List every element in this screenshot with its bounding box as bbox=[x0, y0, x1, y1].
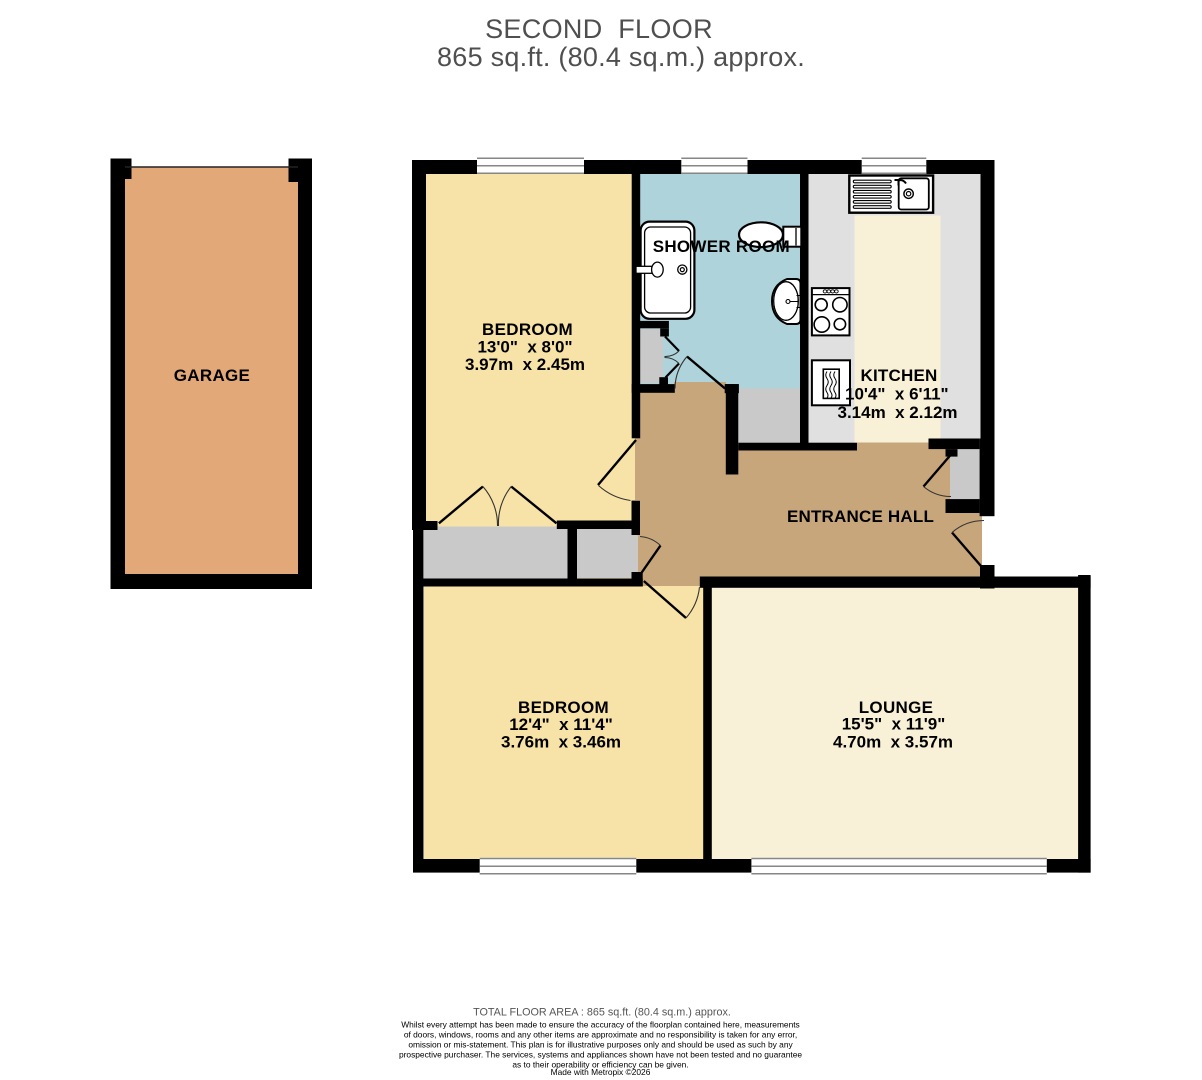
svg-text:15'5" x 11'9": 15'5" x 11'9" bbox=[842, 715, 946, 734]
svg-text:ENTRANCE HALL: ENTRANCE HALL bbox=[787, 507, 934, 526]
svg-text:BEDROOM: BEDROOM bbox=[482, 320, 573, 339]
svg-text:13'0" x 8'0": 13'0" x 8'0" bbox=[477, 338, 572, 357]
svg-text:prospective purchaser. The ser: prospective purchaser. The services, sys… bbox=[399, 1050, 802, 1060]
svg-text:Made with Metropix ©2026: Made with Metropix ©2026 bbox=[551, 1067, 651, 1077]
svg-text:SECOND FLOOR: SECOND FLOOR bbox=[485, 14, 713, 44]
svg-text:Whilst every attempt has been: Whilst every attempt has been made to en… bbox=[401, 1019, 800, 1029]
svg-text:865 sq.ft. (80.4 sq.m.) approx: 865 sq.ft. (80.4 sq.m.) approx. bbox=[437, 42, 805, 72]
svg-text:omission or mis-statement. Thi: omission or mis-statement. This plan is … bbox=[408, 1040, 793, 1050]
svg-text:GARAGE: GARAGE bbox=[174, 366, 250, 385]
svg-text:TOTAL FLOOR AREA : 865 sq.ft.: TOTAL FLOOR AREA : 865 sq.ft. (80.4 sq.m… bbox=[473, 1007, 731, 1019]
svg-text:SHOWER ROOM: SHOWER ROOM bbox=[653, 237, 790, 256]
svg-text:10'4" x 6'11": 10'4" x 6'11" bbox=[845, 385, 949, 404]
svg-text:of doors, windows, rooms and a: of doors, windows, rooms and any other i… bbox=[404, 1029, 797, 1039]
svg-text:3.76m x 3.46m: 3.76m x 3.46m bbox=[501, 733, 621, 752]
svg-text:12'4" x 11'4": 12'4" x 11'4" bbox=[509, 715, 613, 734]
svg-text:3.14m x 2.12m: 3.14m x 2.12m bbox=[837, 403, 957, 422]
svg-text:3.97m x 2.45m: 3.97m x 2.45m bbox=[465, 355, 585, 374]
svg-text:KITCHEN: KITCHEN bbox=[861, 366, 938, 385]
svg-text:4.70m x 3.57m: 4.70m x 3.57m bbox=[833, 733, 953, 752]
